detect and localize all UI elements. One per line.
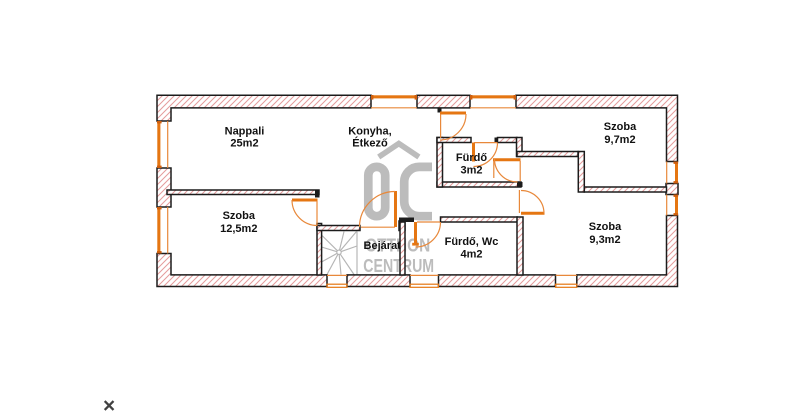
svg-text:Szoba: Szoba — [589, 221, 622, 233]
svg-text:25m2: 25m2 — [230, 137, 258, 149]
svg-text:Konyha,: Konyha, — [348, 126, 391, 138]
svg-text:12,5m2: 12,5m2 — [220, 223, 257, 235]
svg-text:Szoba: Szoba — [223, 210, 256, 222]
svg-text:3m2: 3m2 — [460, 165, 482, 177]
svg-text:9,3m2: 9,3m2 — [589, 234, 620, 246]
svg-text:Bejárat: Bejárat — [364, 240, 402, 252]
svg-text:CENTRUM: CENTRUM — [363, 255, 434, 276]
svg-text:Nappali: Nappali — [225, 126, 265, 138]
svg-text:Szoba: Szoba — [604, 121, 637, 133]
svg-text:Fürdő: Fürdő — [456, 152, 487, 164]
svg-text:9,7m2: 9,7m2 — [604, 134, 635, 146]
svg-text:Étkező: Étkező — [352, 136, 388, 149]
svg-text:Fürdő, Wc: Fürdő, Wc — [445, 236, 499, 248]
svg-text:4m2: 4m2 — [460, 249, 482, 261]
